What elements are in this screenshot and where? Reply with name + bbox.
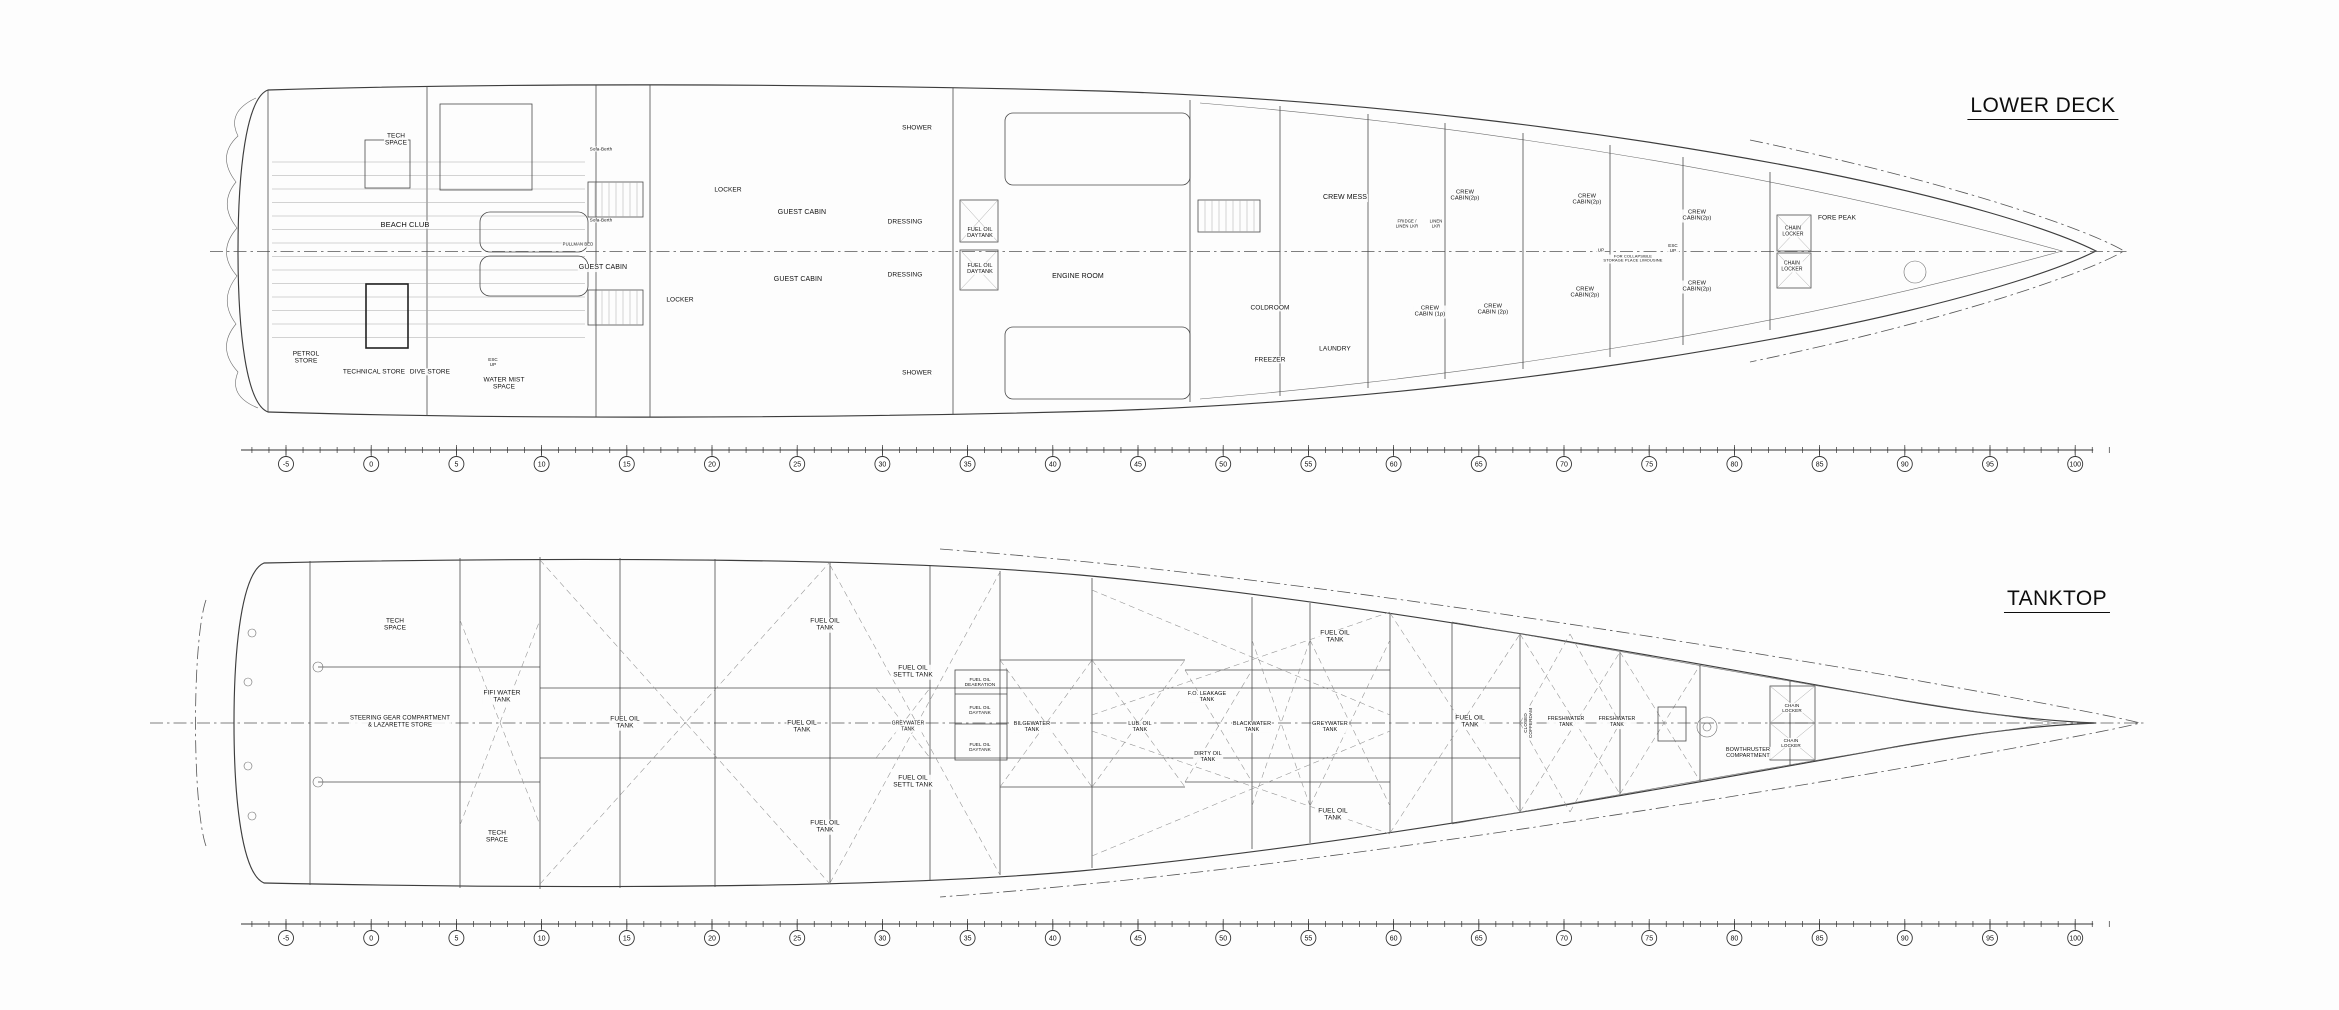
frame-number: 20 — [708, 935, 716, 942]
deck-plan-sheet: -505101520253035404550556065707580859095… — [0, 0, 2339, 1010]
deck-plan-drawing: -505101520253035404550556065707580859095… — [0, 0, 2339, 1010]
frame-number: 75 — [1645, 461, 1653, 468]
frame-number: 0 — [369, 461, 373, 468]
frame-number: 35 — [964, 461, 972, 468]
frame-number: 90 — [1901, 461, 1909, 468]
frame-number: 60 — [1390, 935, 1398, 942]
frame-number: 5 — [454, 461, 458, 468]
frame-number: 80 — [1731, 461, 1739, 468]
frame-number: 0 — [369, 935, 373, 942]
frame-number: 15 — [623, 461, 631, 468]
frame-number: 65 — [1475, 935, 1483, 942]
frame-number: 25 — [793, 935, 801, 942]
frame-number: 25 — [793, 461, 801, 468]
frame-number: 95 — [1986, 935, 1994, 942]
tanktop-frame-ruler: -505101520253035404550556065707580859095… — [241, 919, 2109, 946]
frame-number: 30 — [879, 935, 887, 942]
frame-number: 40 — [1049, 461, 1057, 468]
frame-number: 85 — [1816, 935, 1824, 942]
frame-number: 70 — [1560, 935, 1568, 942]
frame-number: 45 — [1134, 935, 1142, 942]
frame-number: 55 — [1305, 461, 1313, 468]
frame-number: 100 — [2069, 935, 2081, 942]
frame-number: 10 — [538, 935, 546, 942]
frame-number: 75 — [1645, 935, 1653, 942]
frame-number: 65 — [1475, 461, 1483, 468]
frame-number: 95 — [1986, 461, 1994, 468]
tanktop-title: TANKTOP — [2004, 587, 2110, 613]
lower-deck-drawing: -505101520253035404550556065707580859095… — [210, 85, 2128, 472]
frame-number: 60 — [1390, 461, 1398, 468]
frame-number: 10 — [538, 461, 546, 468]
lower-deck-title: LOWER DECK — [1967, 94, 2118, 120]
frame-number: 100 — [2069, 461, 2081, 468]
frame-number: 50 — [1219, 461, 1227, 468]
frame-number: 80 — [1731, 935, 1739, 942]
tanktop-drawing: -505101520253035404550556065707580859095… — [150, 549, 2145, 946]
lower-deck-frame-ruler: -505101520253035404550556065707580859095… — [241, 445, 2109, 472]
frame-number: 5 — [454, 935, 458, 942]
frame-number: -5 — [283, 935, 289, 942]
frame-number: 55 — [1305, 935, 1313, 942]
frame-number: 45 — [1134, 461, 1142, 468]
frame-number: 30 — [879, 461, 887, 468]
frame-number: 90 — [1901, 935, 1909, 942]
frame-number: 15 — [623, 935, 631, 942]
frame-number: 40 — [1049, 935, 1057, 942]
frame-number: 70 — [1560, 461, 1568, 468]
frame-number: 50 — [1219, 935, 1227, 942]
frame-number: 35 — [964, 935, 972, 942]
frame-number: -5 — [283, 461, 289, 468]
frame-number: 85 — [1816, 461, 1824, 468]
frame-number: 20 — [708, 461, 716, 468]
